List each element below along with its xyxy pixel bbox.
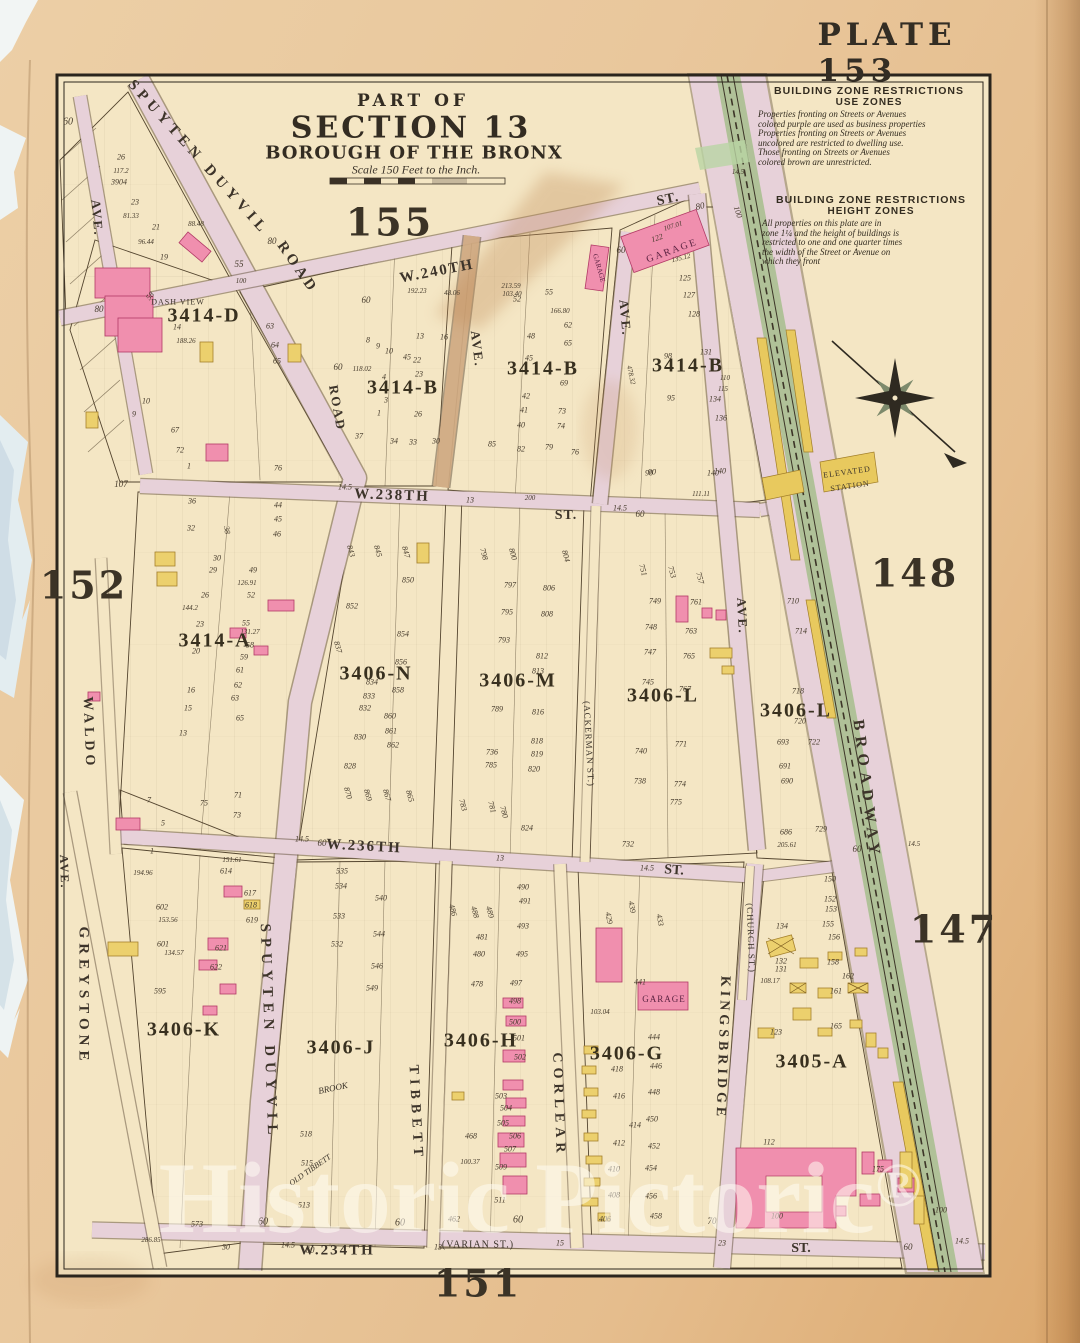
- scale-bar: [330, 178, 505, 184]
- torn-edge: [0, 0, 60, 1343]
- watermark: Historic Pictoric®: [30, 1140, 1050, 1257]
- registered-mark-icon: ®: [875, 1152, 921, 1220]
- atlas-page: PLATE 153 PART OF SECTION 13 BOROUGH OF …: [0, 0, 1080, 1343]
